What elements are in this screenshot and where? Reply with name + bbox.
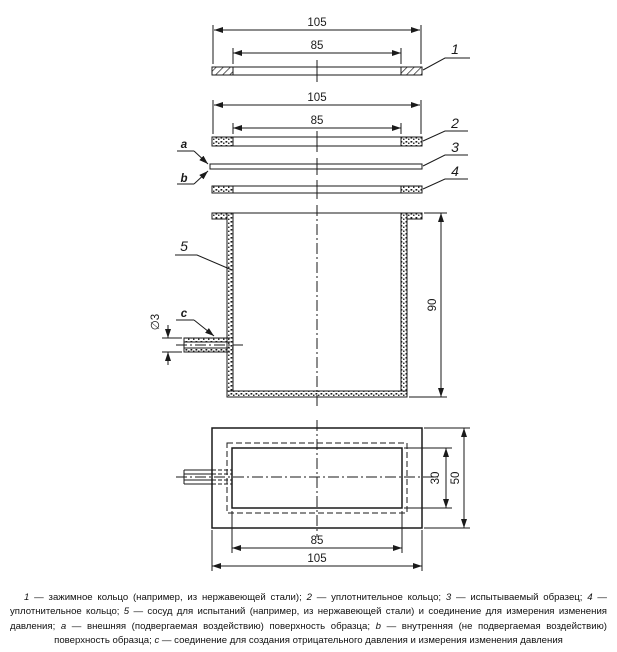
dim-group2-outer: 105 <box>307 92 326 104</box>
ring2-seal-right <box>401 137 422 146</box>
leader-part4 <box>423 179 468 189</box>
dim-plan-outer-width: 105 <box>307 553 326 565</box>
dim-ring1-inner: 85 <box>311 40 324 52</box>
figure-caption: 1 — зажимное кольцо (например, из нержав… <box>10 591 607 649</box>
label-connection-c: c <box>181 308 188 320</box>
leader-part1 <box>423 58 470 70</box>
vessel-wall-left <box>227 213 233 397</box>
leader-part2 <box>423 131 468 141</box>
vessel-wall-right <box>401 213 407 397</box>
ring4-seal-right <box>401 186 422 193</box>
ring1-hatch-right <box>401 67 422 75</box>
label-part5: 5 <box>180 238 188 254</box>
specimen-body <box>210 164 422 169</box>
dim-group2-inner: 85 <box>311 115 324 127</box>
label-part4: 4 <box>451 163 459 179</box>
dim-ring1-outer: 105 <box>307 17 326 29</box>
dim-plan-inner-height: 30 <box>430 472 442 485</box>
ring2-seal-left <box>212 137 233 146</box>
leader-part3 <box>423 155 468 166</box>
vessel-plan-view <box>176 420 470 571</box>
dim-vessel-height: 90 <box>427 299 439 312</box>
label-surface-b: b <box>180 173 187 185</box>
leader-a <box>194 151 208 164</box>
part5-vessel-section <box>162 205 447 407</box>
ring1-hatch-left <box>212 67 233 75</box>
label-part1: 1 <box>451 41 459 57</box>
leader-part5 <box>175 255 232 270</box>
vessel-flange-right <box>407 213 422 219</box>
dim-pipe-diameter: ∅3 <box>150 314 162 330</box>
label-surface-a: a <box>181 139 188 151</box>
label-part3: 3 <box>451 139 459 155</box>
figure-page: 105 85 1 105 85 2 3 4 a b 5 c 90 ∅3 30 5… <box>0 0 617 652</box>
ring4-seal-left <box>212 186 233 193</box>
dim-plan-inner-width: 85 <box>311 535 324 547</box>
part1-clamping-ring <box>212 25 470 82</box>
test-vessel-technical-drawing: 105 85 1 105 85 2 3 4 a b 5 c 90 ∅3 30 5… <box>0 0 617 578</box>
leader-c <box>194 320 214 336</box>
dim-plan-outer-height: 50 <box>450 472 462 485</box>
vessel-flange-left <box>212 213 227 219</box>
leader-b <box>194 171 208 184</box>
label-part2: 2 <box>450 115 459 131</box>
